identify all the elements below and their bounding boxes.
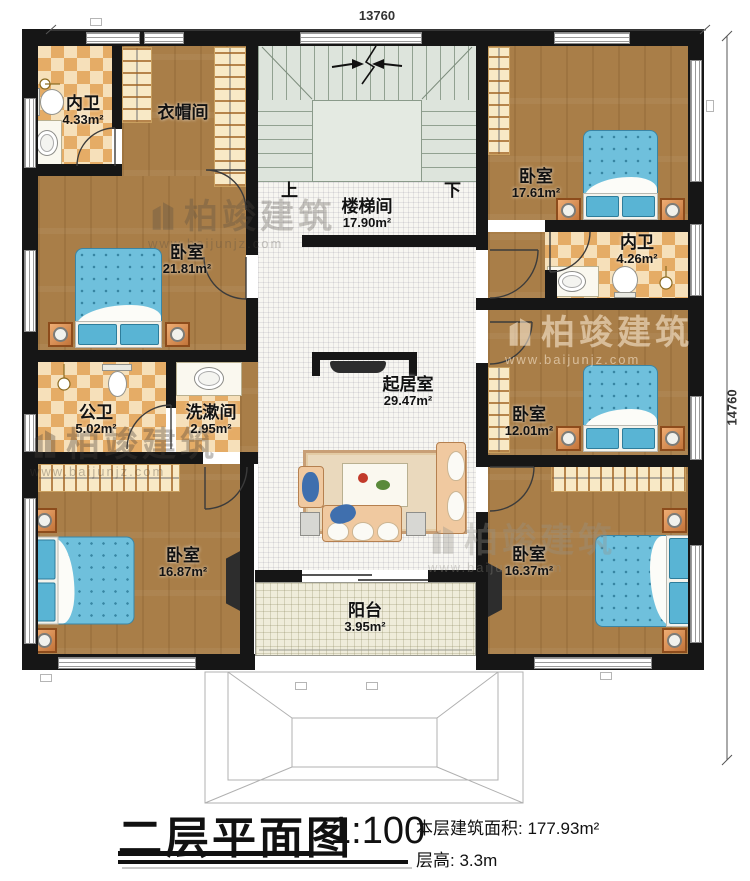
room-label-bedroom-bottom-right: 卧室16.37m² [505,546,553,578]
exterior-mark [90,18,102,26]
wall [476,363,488,455]
room-label-bath-right: 内卫4.26m² [616,234,657,266]
wall [545,220,688,232]
closet [488,47,510,155]
toilet-bowl [108,371,127,397]
person-figure [302,472,319,502]
plan-scale: 1:100 [330,810,425,853]
stairs-right-run [422,100,476,182]
toilet-tank [102,364,132,371]
nightstand [662,508,687,533]
room-label-public-bath: 公卫5.02m² [75,404,116,436]
room-label-balcony: 阳台3.95m² [344,602,385,634]
room-label-living-room: 起居室29.47m² [383,376,434,408]
pillow [622,196,655,217]
bed [583,365,658,452]
stairs-landing [312,100,422,182]
floor-area-stat: 本层建筑面积: 177.93m² [416,814,599,839]
pillow [78,324,117,345]
bed-headboard [583,425,658,452]
wall [302,235,476,247]
side-table [300,512,320,536]
title-underline-shadow [122,867,412,869]
wall [22,452,203,464]
nightstand [662,628,687,653]
wall [476,29,488,250]
room-label-bedroom-mid-right: 卧室12.01m² [505,406,553,438]
pillow [669,538,690,580]
window [24,98,36,168]
room-label-washroom: 洗漱间2.95m² [186,404,237,436]
exterior-mark [706,100,714,112]
nightstand [48,322,73,347]
dimension-top: 13760 [359,8,395,23]
window [690,60,702,182]
bed-headboard [583,193,658,220]
side-table [406,512,426,536]
exterior-mark [295,682,307,690]
toilet-bowl [612,266,638,294]
window [554,32,630,44]
window [144,32,184,44]
wall [112,45,122,129]
pillow [586,428,619,449]
wall [545,270,557,300]
dimension-right: 14760 [725,389,740,425]
floor-plan: 柏竣建筑 www.baijunjz.com 柏竣建筑 www.baijunjz.… [0,0,750,881]
tv-console-end [409,352,417,376]
wall [246,45,258,255]
title-underline-long [118,860,408,864]
pillow [669,583,690,625]
window [690,396,702,460]
toilet-bowl [40,89,64,115]
room-label-cloakroom: 衣帽间 [158,104,209,122]
stairs-down-label: 下 [444,176,461,201]
bed [75,248,162,348]
bed [595,535,693,627]
wall [476,455,704,467]
wall [428,570,476,582]
floor-bath-corridor [240,362,258,452]
bed-headboard [75,321,162,348]
table-decor [358,473,368,483]
plan-title: 二层平面图 [118,802,353,866]
stairs-up-label: 上 [281,176,298,201]
nightstand [165,322,190,347]
balcony-slider [302,575,428,580]
pillow [586,196,619,217]
tv-console-end [312,352,320,376]
loveseat [436,442,466,534]
exterior-mark [40,674,52,682]
table-decor [376,480,390,490]
window [24,414,36,452]
window [690,545,702,643]
window [690,224,702,296]
wall [240,452,254,654]
bed [583,130,658,220]
floor-height-stat: 层高: 3.3m [416,846,497,871]
title-underline [118,851,310,856]
closet [122,47,152,123]
stairs-left-run [258,100,312,182]
room-label-bath-top-left: 内卫4.33m² [62,95,103,127]
wall [476,512,488,654]
exterior-mark [366,682,378,690]
room-label-bedroom-top-right: 卧室17.61m² [512,168,560,200]
wall [255,570,302,582]
wall [22,164,122,176]
stairs-top-run [258,45,476,100]
wall [476,298,704,310]
wall [22,350,258,362]
room-label-stairwell: 楼梯间17.90m² [342,198,393,230]
floor-bath-vestibule [488,232,545,298]
window [24,498,36,644]
wall [166,362,176,408]
bed [32,537,135,625]
room-label-bedroom-bottom-left: 卧室16.87m² [159,547,207,579]
tv [488,563,502,617]
coffee-table [342,463,408,507]
closet [38,464,180,492]
room-label-bedroom-mid-left: 卧室21.81m² [163,244,211,276]
window [24,250,36,332]
pillow [120,324,159,345]
tv [330,361,386,373]
tv-console [312,352,417,360]
sink [194,367,224,390]
closet [551,464,686,492]
sink [558,271,586,292]
window [300,32,422,44]
window [534,657,652,669]
porch-roof-outline [205,672,523,803]
sink [36,130,58,156]
exterior-mark [600,672,612,680]
nightstand [556,426,581,451]
pillow [622,428,655,449]
window [86,32,140,44]
window [58,657,196,669]
closet [214,47,246,187]
nightstand [660,426,685,451]
